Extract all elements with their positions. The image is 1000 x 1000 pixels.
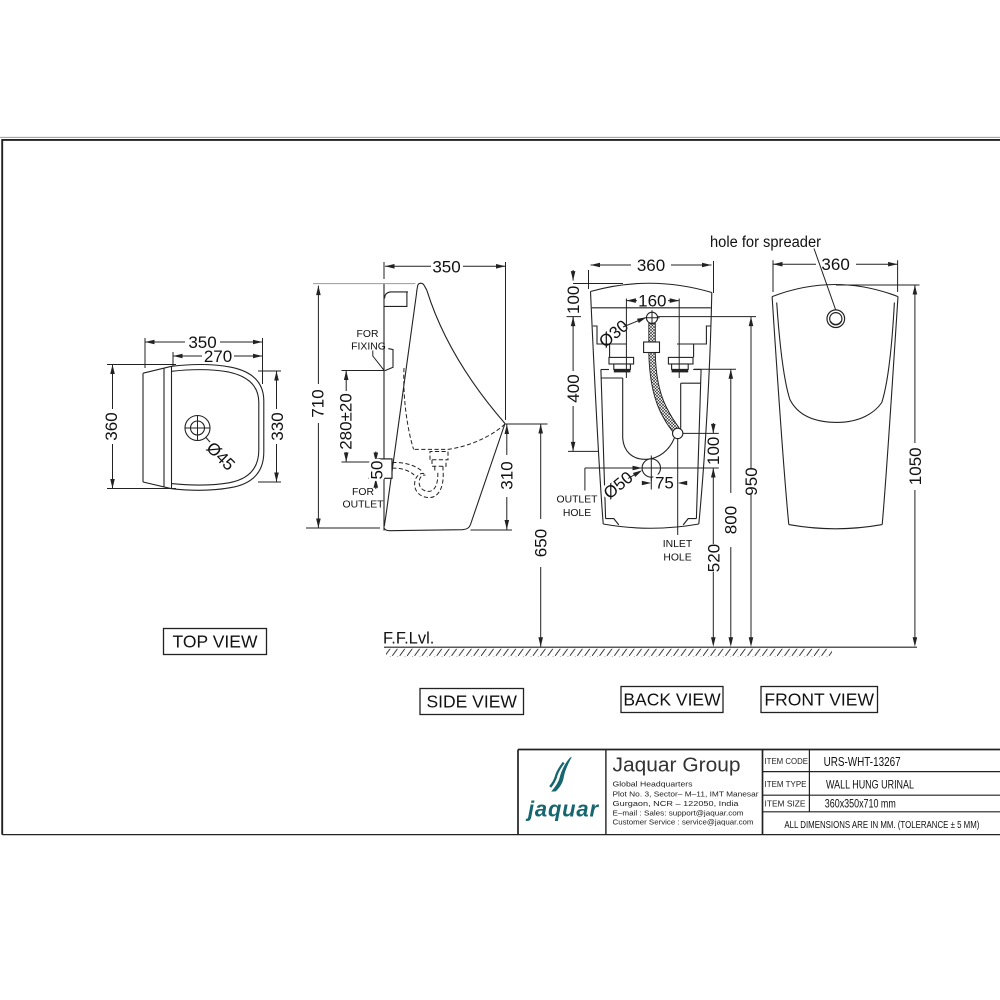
svg-text:jaquar: jaquar (525, 797, 599, 822)
svg-text:ITEM SIZE: ITEM SIZE (765, 799, 806, 809)
svg-text:ITEM TYPE: ITEM TYPE (765, 779, 807, 789)
svg-text:310: 310 (497, 461, 516, 489)
svg-text:FOR: FOR (352, 487, 374, 498)
svg-text:hole for spreader: hole for spreader (710, 234, 821, 251)
svg-text:FRONT VIEW: FRONT VIEW (764, 690, 874, 710)
svg-text:50: 50 (368, 461, 387, 480)
svg-text:F.F.Lvl.: F.F.Lvl. (383, 630, 434, 648)
svg-text:Jaquar Group: Jaquar Group (613, 755, 741, 777)
svg-text:950: 950 (742, 467, 761, 495)
svg-text:280±20: 280±20 (337, 393, 356, 450)
svg-text:Plot No. 3, Sector– M–11, IMT: Plot No. 3, Sector– M–11, IMT Manesar (613, 789, 760, 798)
svg-text:HOLE: HOLE (563, 508, 591, 519)
svg-text:360: 360 (821, 255, 849, 274)
svg-text:BACK VIEW: BACK VIEW (623, 690, 721, 710)
svg-text:Global Headquarters: Global Headquarters (613, 780, 693, 789)
svg-text:HOLE: HOLE (663, 553, 691, 564)
svg-text:270: 270 (204, 347, 232, 366)
svg-text:SIDE VIEW: SIDE VIEW (426, 692, 517, 712)
svg-text:OUTLET: OUTLET (343, 500, 385, 511)
svg-text:Customer Service : service@jaq: Customer Service : service@jaquar.com (613, 818, 754, 827)
svg-text:360: 360 (637, 256, 665, 275)
svg-text:ITEM CODE: ITEM CODE (765, 756, 809, 766)
svg-text:800: 800 (722, 506, 741, 534)
svg-text:ALL DIMENSIONS ARE IN MM. (TOL: ALL DIMENSIONS ARE IN MM. (TOLERANCE ± 5… (784, 820, 979, 831)
svg-text:1050: 1050 (906, 447, 925, 485)
svg-text:520: 520 (704, 544, 723, 572)
svg-text:URS-WHT-13267: URS-WHT-13267 (824, 754, 901, 769)
svg-text:TOP VIEW: TOP VIEW (173, 632, 258, 652)
svg-text:Gurgaon, NCR – 122050, India: Gurgaon, NCR – 122050, India (613, 799, 740, 808)
svg-text:360: 360 (102, 412, 121, 440)
svg-text:330: 330 (268, 412, 287, 440)
svg-text:FIXING: FIXING (351, 342, 386, 353)
svg-text:100: 100 (564, 286, 583, 314)
svg-text:400: 400 (564, 374, 583, 402)
svg-text:75: 75 (655, 474, 674, 493)
svg-text:360x350x710 mm: 360x350x710 mm (825, 799, 896, 811)
svg-text:INLET: INLET (663, 539, 693, 550)
svg-text:650: 650 (532, 529, 551, 557)
svg-text:OUTLET: OUTLET (557, 495, 599, 506)
svg-text:E–mail : Sales: support@jaquar: E–mail : Sales: support@jaquar.com (613, 808, 744, 817)
svg-text:FOR: FOR (357, 329, 379, 340)
svg-text:710: 710 (309, 389, 328, 417)
svg-text:350: 350 (432, 258, 460, 277)
svg-text:WALL HUNG URINAL: WALL HUNG URINAL (826, 778, 914, 792)
svg-text:160: 160 (638, 292, 666, 311)
svg-text:100: 100 (704, 437, 723, 465)
